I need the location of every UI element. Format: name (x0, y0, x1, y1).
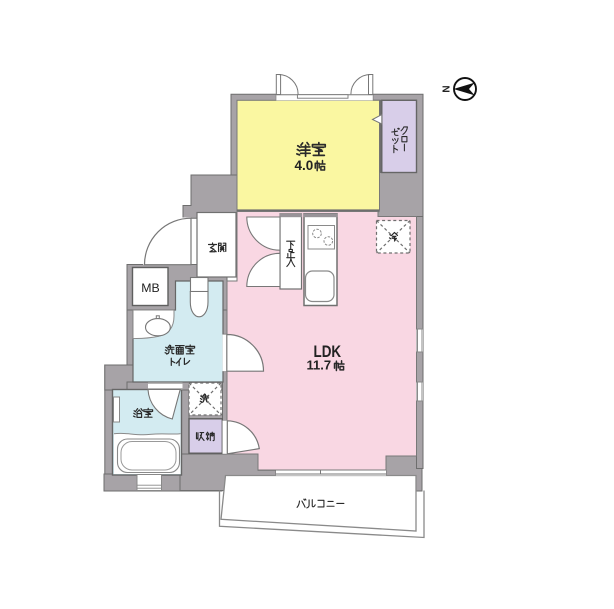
svg-text:11.7: 11.7 (307, 358, 332, 373)
svg-text:MB: MB (141, 281, 159, 295)
svg-text:N: N (442, 85, 453, 92)
svg-text:4.0: 4.0 (295, 158, 314, 173)
